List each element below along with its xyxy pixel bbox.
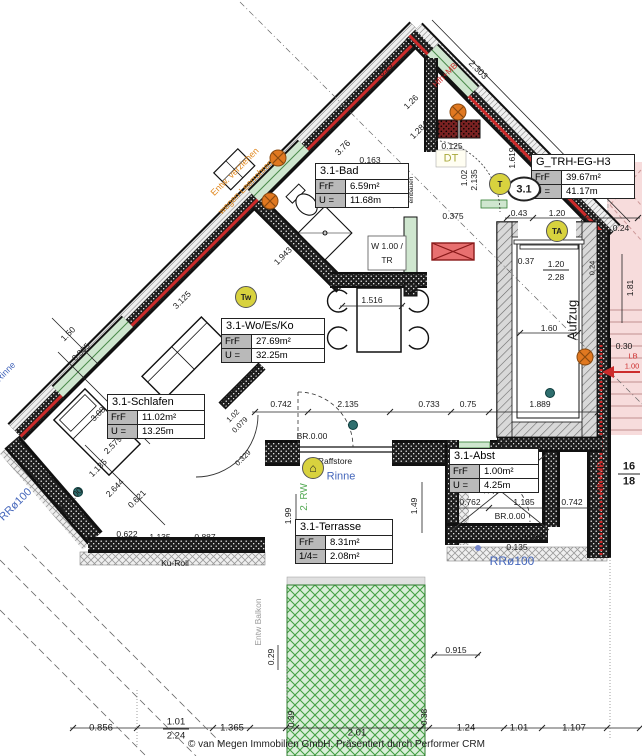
elevator-label: Aufzug bbox=[566, 300, 579, 340]
elevator-door bbox=[520, 245, 578, 249]
dim-label: BR.0.00 bbox=[297, 432, 328, 441]
house-drain-badge: ⌂ bbox=[302, 457, 324, 479]
dim-label: 1.49 bbox=[410, 498, 419, 515]
dim-label: 1.01 bbox=[510, 723, 529, 733]
dim-label: 1.107 bbox=[562, 723, 586, 733]
dim-label: 1.619 bbox=[508, 147, 517, 168]
dim-label: 0.375 bbox=[442, 212, 463, 221]
dim-label: 2.135 bbox=[337, 400, 358, 409]
dim-label: 2.24 bbox=[167, 731, 186, 741]
dim-label: 1.135 bbox=[149, 533, 170, 542]
dim-label: 1.516 bbox=[361, 296, 382, 305]
dim-label: LB bbox=[628, 352, 637, 360]
room-name: 3.1-Abst bbox=[450, 449, 538, 465]
terrace-glass-door bbox=[300, 447, 392, 452]
dim-label: 1.24 bbox=[457, 723, 476, 733]
rw-label: 2. RW bbox=[300, 483, 310, 511]
dim-label: 2.28 bbox=[548, 273, 565, 282]
red-crossed-box bbox=[432, 243, 474, 260]
shaft-blocks bbox=[438, 120, 480, 138]
dim-label: 0.125 bbox=[441, 142, 462, 151]
dim-label: 0.24 bbox=[613, 224, 630, 233]
hfh-mb-label: Hfh+MB bbox=[597, 462, 606, 495]
stairwell-floor bbox=[607, 162, 642, 435]
terrace-edge-strip bbox=[287, 577, 425, 585]
dim-label: 0.887 bbox=[194, 533, 215, 542]
room-label-wo: 3.1-Wo/Es/Ko FrF27.69m² U =32.25m bbox=[221, 318, 325, 363]
dim-label: 1.81 bbox=[626, 280, 635, 297]
balkon-note: Entw Balkon bbox=[254, 598, 263, 645]
room-name: 3.1-Wo/Es/Ko bbox=[222, 319, 324, 335]
dim-label: 2.01 bbox=[348, 728, 367, 738]
stair-count: 16 bbox=[623, 462, 635, 473]
ta-badge: TA bbox=[546, 220, 568, 242]
floorplan-page: 2.3033.760.251.261.2840.125DT0.1631.022.… bbox=[0, 0, 642, 756]
dim-label: 1.20 bbox=[548, 260, 565, 269]
t-badge: T bbox=[489, 173, 511, 195]
attribution-footer: © van Megen Immobilien GmbH. Präsentiert… bbox=[188, 739, 485, 750]
dim-label: 0.742 bbox=[270, 400, 291, 409]
dim-label: 1.99 bbox=[284, 508, 293, 525]
dim-label: 0.75 bbox=[460, 400, 477, 409]
room-label-trh: G_TRH-EG-H3 FrF39.67m² U =41.17m bbox=[531, 154, 635, 199]
room-name: G_TRH-EG-H3 bbox=[532, 155, 634, 171]
dim-label: 0.30 bbox=[616, 342, 633, 351]
dt-label: DT bbox=[444, 154, 459, 165]
dim-label: 0.24 bbox=[588, 261, 596, 276]
wardrobe bbox=[142, 317, 224, 399]
dim-label: 0.29 bbox=[267, 649, 276, 666]
room-name: 3.1-Bad bbox=[316, 164, 408, 180]
dim-label: 1.00 bbox=[625, 362, 640, 370]
ku-roll-label: Ku-Roll bbox=[516, 533, 544, 542]
room-label-abst: 3.1-Abst FrF1.00m² U =4.25m bbox=[449, 448, 539, 493]
stair-count: 18 bbox=[623, 477, 635, 488]
floorplan-drawing bbox=[0, 0, 642, 756]
room-label-bad: 3.1-Bad FrF6.59m² U =11.68m bbox=[315, 163, 409, 208]
tw-badge: Tw bbox=[235, 286, 257, 308]
dim-label: 0.622 bbox=[116, 530, 137, 539]
dim-label: einbauen bbox=[409, 177, 416, 204]
room-label-terrasse: 3.1-Terrasse FrF8.31m² 1/4=2.08m² bbox=[295, 519, 393, 564]
dim-label: 0.135 bbox=[506, 543, 527, 552]
dim-label: 1.889 bbox=[529, 400, 550, 409]
dim-label: 0.733 bbox=[418, 400, 439, 409]
dim-label: 1.20 bbox=[549, 209, 566, 218]
dim-label: 1.135 bbox=[513, 498, 534, 507]
room-name: 3.1-Schlafen bbox=[108, 395, 204, 411]
dim-label: 0.915 bbox=[445, 646, 466, 655]
window-tag: W 1.00 / bbox=[371, 242, 403, 251]
window-tag: TR bbox=[381, 256, 392, 265]
dim-label: 1.365 bbox=[220, 723, 244, 733]
dim-label: 0.37 bbox=[518, 257, 535, 266]
dim-label: 1.02 bbox=[460, 170, 469, 187]
room-label-schlafen: 3.1-Schlafen FrF11.02m² U =13.25m bbox=[107, 394, 205, 439]
dim-label: 1.60 bbox=[541, 324, 558, 333]
rainpipe-label: RRø100 bbox=[490, 555, 535, 567]
pipe-dot bbox=[475, 545, 481, 551]
elevator-door bbox=[514, 240, 584, 244]
dim-label: BR.0.00 bbox=[495, 512, 526, 521]
dim-label: 1.01 bbox=[167, 717, 186, 727]
dim-label: 0.39 bbox=[287, 711, 296, 728]
unit-number-badge: 3.1 bbox=[507, 177, 541, 202]
room-name: 3.1-Terrasse bbox=[296, 520, 392, 536]
dim-label: 0.762 bbox=[459, 498, 480, 507]
dim-label: 0.43 bbox=[511, 209, 528, 218]
dim-label: 2.135 bbox=[470, 169, 479, 190]
dim-label: 0.856 bbox=[89, 723, 113, 733]
ku-roll-label: Ku-Roll bbox=[161, 559, 189, 568]
dim-label: 0.742 bbox=[561, 498, 582, 507]
gutter-label: Rinne bbox=[327, 472, 356, 483]
dim-label: 0.38 bbox=[420, 709, 429, 726]
